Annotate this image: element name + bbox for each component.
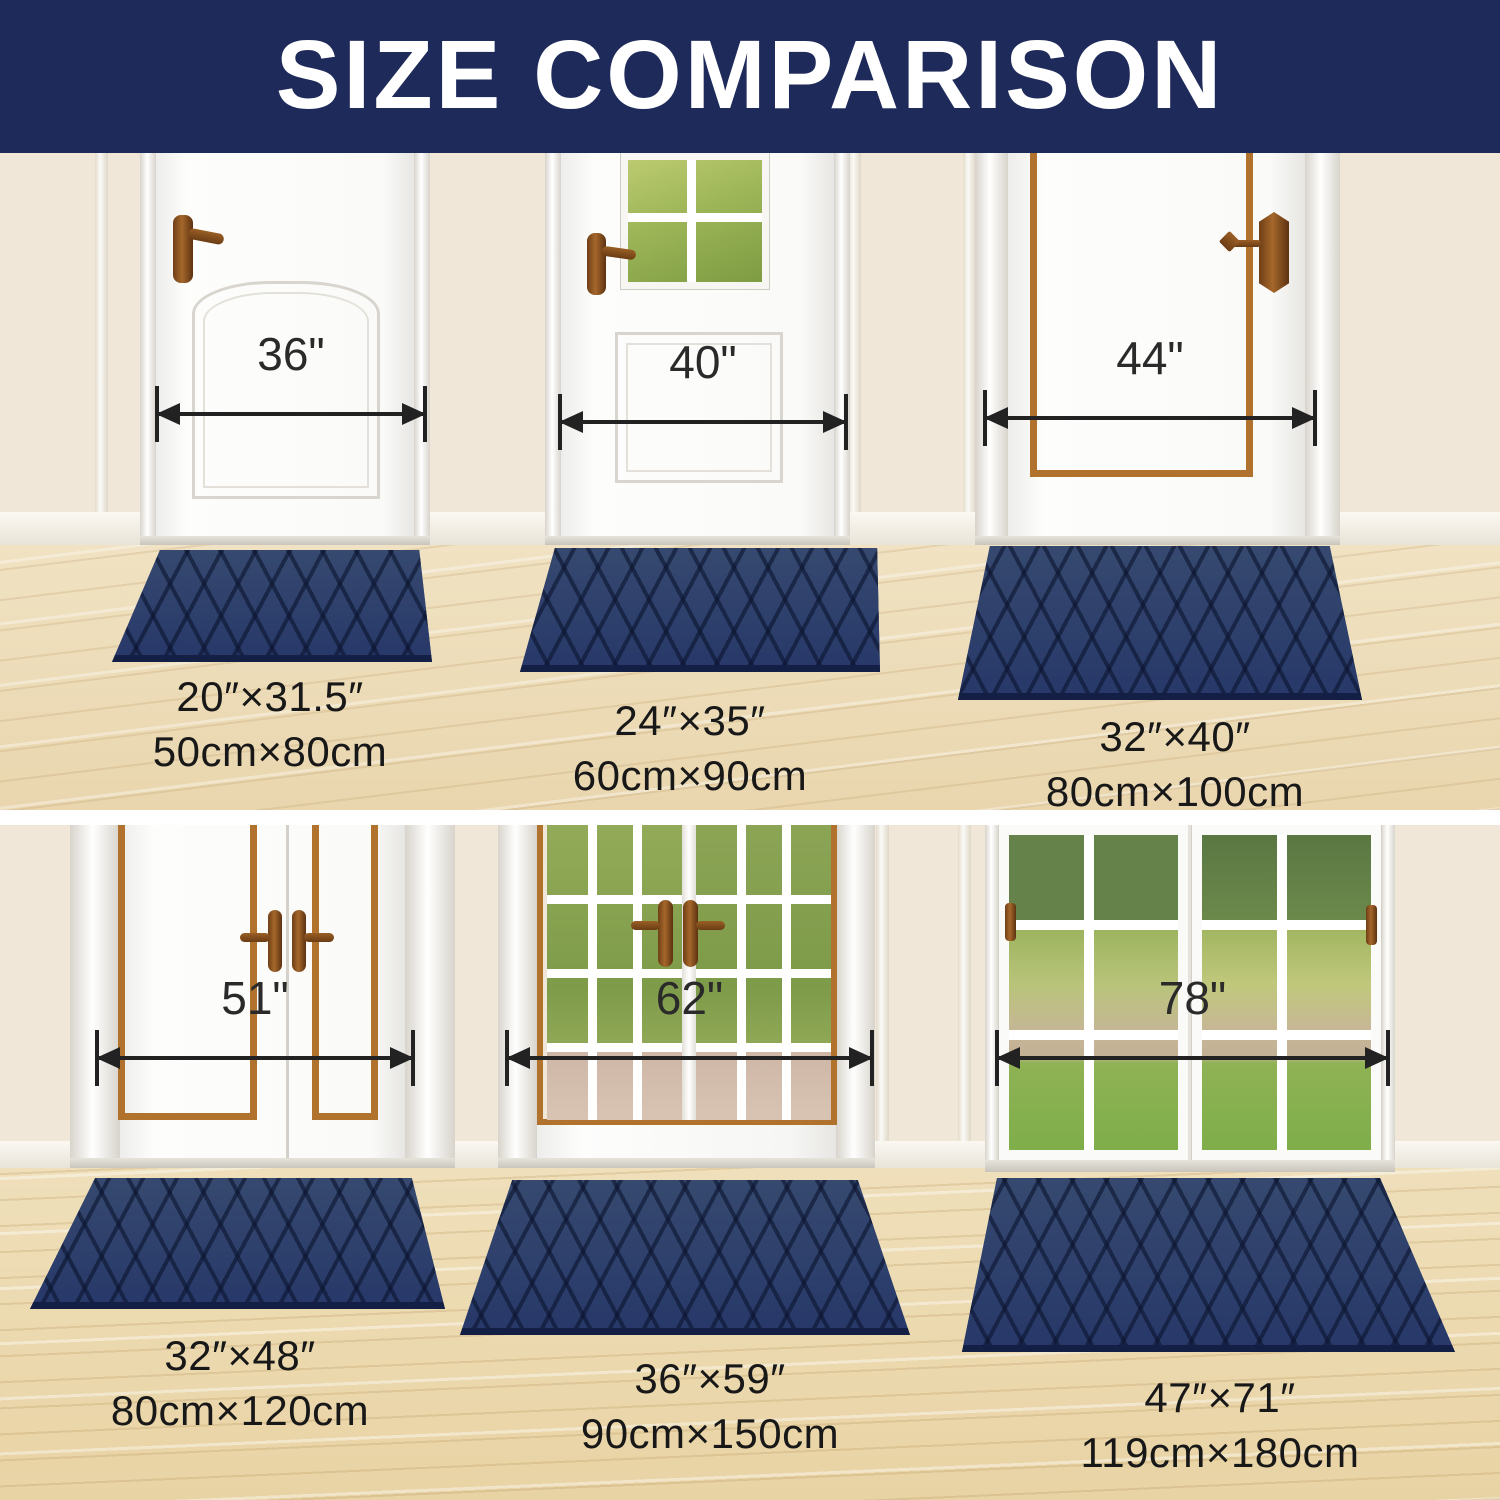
arrow-line-icon bbox=[986, 416, 1314, 420]
mat-size-cm: 80cm×120cm bbox=[60, 1383, 420, 1438]
measure-label: 36" bbox=[155, 331, 427, 377]
measure-36: 36" bbox=[155, 331, 427, 442]
door-handle bbox=[240, 933, 270, 942]
door-handle bbox=[683, 900, 698, 967]
size-comparison-infographic: SIZE COMPARISON bbox=[0, 0, 1500, 1500]
mat-size-label: 32″×48″ 80cm×120cm bbox=[60, 1328, 420, 1439]
door-frame bbox=[140, 153, 156, 545]
bottom-row-scene: 51" 62" 78" bbox=[0, 825, 1500, 1500]
mat-size-cm: 119cm×180cm bbox=[1015, 1425, 1425, 1480]
door-sill bbox=[70, 1158, 455, 1168]
mat-size-label: 36″×59″ 90cm×150cm bbox=[515, 1351, 905, 1462]
mat-size-cm: 60cm×90cm bbox=[515, 748, 865, 803]
measure-40: 40" bbox=[558, 339, 848, 450]
door-handle bbox=[268, 910, 282, 972]
door-handle bbox=[1259, 212, 1289, 293]
measure-arrow bbox=[558, 394, 848, 450]
mat-size-inches: 36″×59″ bbox=[515, 1351, 905, 1406]
door-handle bbox=[304, 933, 334, 942]
door-sill bbox=[498, 1158, 875, 1168]
door-handle bbox=[658, 900, 673, 967]
mat-47x71 bbox=[962, 1178, 1455, 1352]
measure-label: 78" bbox=[995, 975, 1390, 1021]
mat-32x48 bbox=[30, 1178, 445, 1309]
mat-size-inches: 32″×40″ bbox=[1000, 709, 1350, 764]
mat-size-cm: 50cm×80cm bbox=[95, 724, 445, 779]
door-sill bbox=[545, 536, 850, 545]
mat-size-inches: 47″×71″ bbox=[1015, 1370, 1425, 1425]
door-handle bbox=[696, 921, 725, 930]
arrow-line-icon bbox=[561, 420, 845, 424]
mat-size-label: 47″×71″ 119cm×180cm bbox=[1015, 1370, 1425, 1481]
top-row-scene: 36" 40" 44" bbox=[0, 153, 1500, 810]
measure-arrow bbox=[95, 1030, 415, 1086]
measure-arrow bbox=[995, 1030, 1390, 1086]
header-banner: SIZE COMPARISON bbox=[0, 0, 1500, 153]
arrow-line-icon bbox=[508, 1056, 871, 1060]
door-sill bbox=[140, 536, 430, 545]
section-divider bbox=[0, 810, 1500, 825]
door-sill bbox=[975, 536, 1340, 545]
measure-arrow bbox=[155, 386, 427, 442]
mat-size-inches: 24″×35″ bbox=[515, 693, 865, 748]
measure-arrow bbox=[983, 390, 1317, 446]
door-handle bbox=[1366, 905, 1377, 945]
mat-size-label: 20″×31.5″ 50cm×80cm bbox=[95, 669, 445, 780]
mat-size-label: 32″×40″ 80cm×100cm bbox=[1000, 709, 1350, 810]
measure-label: 62" bbox=[505, 975, 874, 1021]
arrow-line-icon bbox=[158, 412, 424, 416]
arrow-line-icon bbox=[998, 1056, 1387, 1060]
door-handle bbox=[631, 921, 660, 930]
measure-label: 40" bbox=[558, 339, 848, 385]
measure-label: 44" bbox=[983, 335, 1317, 381]
door-window bbox=[621, 153, 769, 289]
mat-size-inches: 32″×48″ bbox=[60, 1328, 420, 1383]
measure-51: 51" bbox=[95, 975, 415, 1086]
door-sill bbox=[985, 1160, 1395, 1172]
measure-44: 44" bbox=[983, 335, 1317, 446]
measure-label: 51" bbox=[95, 975, 415, 1021]
mat-size-cm: 80cm×100cm bbox=[1000, 764, 1350, 810]
door-handle bbox=[292, 910, 306, 972]
mat-24x35 bbox=[520, 548, 880, 672]
page-title: SIZE COMPARISON bbox=[0, 0, 1500, 150]
mat-size-cm: 90cm×150cm bbox=[515, 1406, 905, 1461]
mat-32x40 bbox=[958, 546, 1362, 700]
door-handle bbox=[1005, 903, 1016, 941]
measure-arrow bbox=[505, 1030, 874, 1086]
mat-size-inches: 20″×31.5″ bbox=[95, 669, 445, 724]
door-handle bbox=[173, 215, 193, 283]
arrow-line-icon bbox=[98, 1056, 412, 1060]
mat-20x31 bbox=[112, 550, 432, 662]
door-kick-panel bbox=[537, 1120, 836, 1158]
mat-size-label: 24″×35″ 60cm×90cm bbox=[515, 693, 865, 804]
mat-36x59 bbox=[460, 1180, 910, 1335]
measure-62: 62" bbox=[505, 975, 874, 1086]
door-handle bbox=[587, 233, 606, 295]
measure-78: 78" bbox=[995, 975, 1390, 1086]
